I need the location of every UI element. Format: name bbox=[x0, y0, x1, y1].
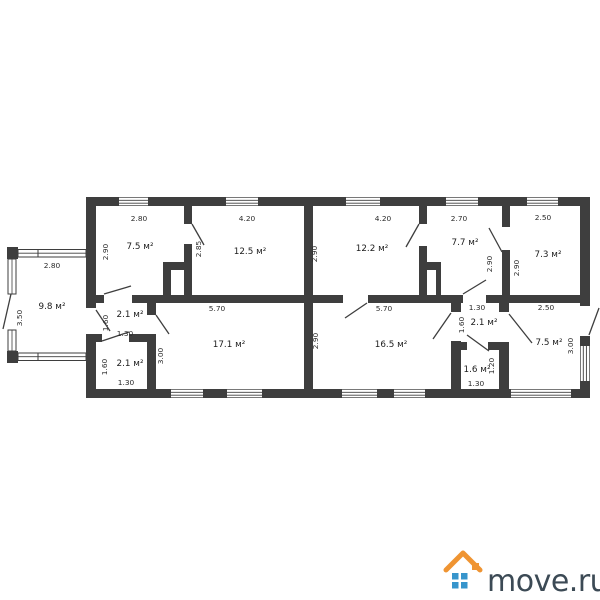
dimension-labels-vertical: 3.50 2.90 2.85 2.90 2.90 2.90 1.60 1.60 … bbox=[15, 240, 575, 375]
floor-plan-image: 2.80 2.80 4.20 4.20 2.70 2.50 1.30 1.30 … bbox=[0, 0, 600, 600]
dim-label: 2.90 bbox=[101, 243, 110, 260]
dim-label: 2.90 bbox=[485, 255, 494, 272]
door bbox=[104, 286, 131, 294]
door bbox=[467, 335, 489, 351]
walls bbox=[86, 197, 590, 398]
window bbox=[581, 346, 590, 381]
door bbox=[509, 314, 532, 343]
window bbox=[8, 259, 16, 294]
room-label-21-lower: 2.1 м² bbox=[117, 359, 144, 369]
window bbox=[18, 250, 86, 258]
room-label-vestibule: 2.1 м² bbox=[471, 318, 498, 328]
dim-label: 5.70 bbox=[209, 304, 226, 313]
house-icon bbox=[446, 553, 480, 589]
logo-text: move.ru bbox=[487, 564, 600, 599]
window bbox=[8, 330, 16, 351]
window bbox=[342, 390, 377, 398]
window bbox=[394, 390, 425, 398]
room-label-veranda: 9.8 м² bbox=[39, 302, 66, 312]
dim-label: 2.50 bbox=[538, 303, 555, 312]
door bbox=[589, 308, 599, 335]
room-label-hall: 2.1 м² bbox=[117, 310, 144, 320]
room-label-16: 1.6 м² bbox=[464, 365, 491, 375]
door bbox=[433, 313, 451, 339]
dim-label: 2.50 bbox=[535, 213, 552, 222]
dim-label: 1.60 bbox=[100, 358, 109, 375]
dim-label: 1.60 bbox=[457, 316, 466, 333]
dim-label: 1.30 bbox=[468, 379, 485, 388]
dim-label: 5.70 bbox=[376, 304, 393, 313]
room-label-77: 7.7 м² bbox=[452, 238, 479, 248]
window bbox=[527, 198, 558, 206]
dim-label: 2.70 bbox=[451, 214, 468, 223]
door bbox=[156, 315, 169, 334]
dim-label: 2.90 bbox=[310, 245, 319, 262]
window bbox=[446, 198, 478, 206]
room-label-125: 12.5 м² bbox=[234, 247, 267, 257]
dim-label: 1.30 bbox=[117, 329, 134, 338]
dim-label: 2.85 bbox=[194, 240, 203, 257]
dim-label: 3.00 bbox=[156, 347, 165, 364]
room-label-171: 17.1 м² bbox=[213, 340, 246, 350]
window bbox=[226, 198, 258, 206]
door bbox=[489, 228, 502, 252]
dim-label: 2.90 bbox=[512, 259, 521, 276]
dim-label: 3.50 bbox=[15, 309, 24, 326]
room-label-165: 16.5 м² bbox=[375, 340, 408, 350]
dim-label: 1.30 bbox=[118, 378, 135, 387]
dim-label: 2.90 bbox=[311, 332, 320, 349]
door bbox=[406, 224, 419, 247]
room-label-122: 12.2 м² bbox=[356, 244, 389, 254]
window bbox=[227, 390, 262, 398]
dim-label: 3.00 bbox=[566, 337, 575, 354]
dim-label: 1.60 bbox=[101, 314, 110, 331]
dim-label: 4.20 bbox=[239, 214, 256, 223]
dim-label: 2.80 bbox=[44, 261, 61, 270]
stove-blocks bbox=[163, 262, 441, 295]
door bbox=[345, 303, 367, 318]
room-label-73: 7.3 м² bbox=[535, 250, 562, 260]
window bbox=[171, 390, 203, 398]
room-label-75-bottom: 7.5 м² bbox=[536, 338, 563, 348]
window bbox=[18, 353, 86, 361]
floor-plan-svg: 2.80 2.80 4.20 4.20 2.70 2.50 1.30 1.30 … bbox=[0, 0, 600, 600]
dim-label: 4.20 bbox=[375, 214, 392, 223]
door bbox=[463, 280, 486, 294]
dim-label: 1.30 bbox=[469, 303, 486, 312]
move-logo: move.ru bbox=[446, 553, 600, 599]
window bbox=[119, 198, 148, 206]
door bbox=[3, 294, 11, 329]
dim-label: 2.80 bbox=[131, 214, 148, 223]
window bbox=[511, 390, 571, 398]
window bbox=[346, 198, 380, 206]
room-label-75-top: 7.5 м² bbox=[127, 242, 154, 252]
